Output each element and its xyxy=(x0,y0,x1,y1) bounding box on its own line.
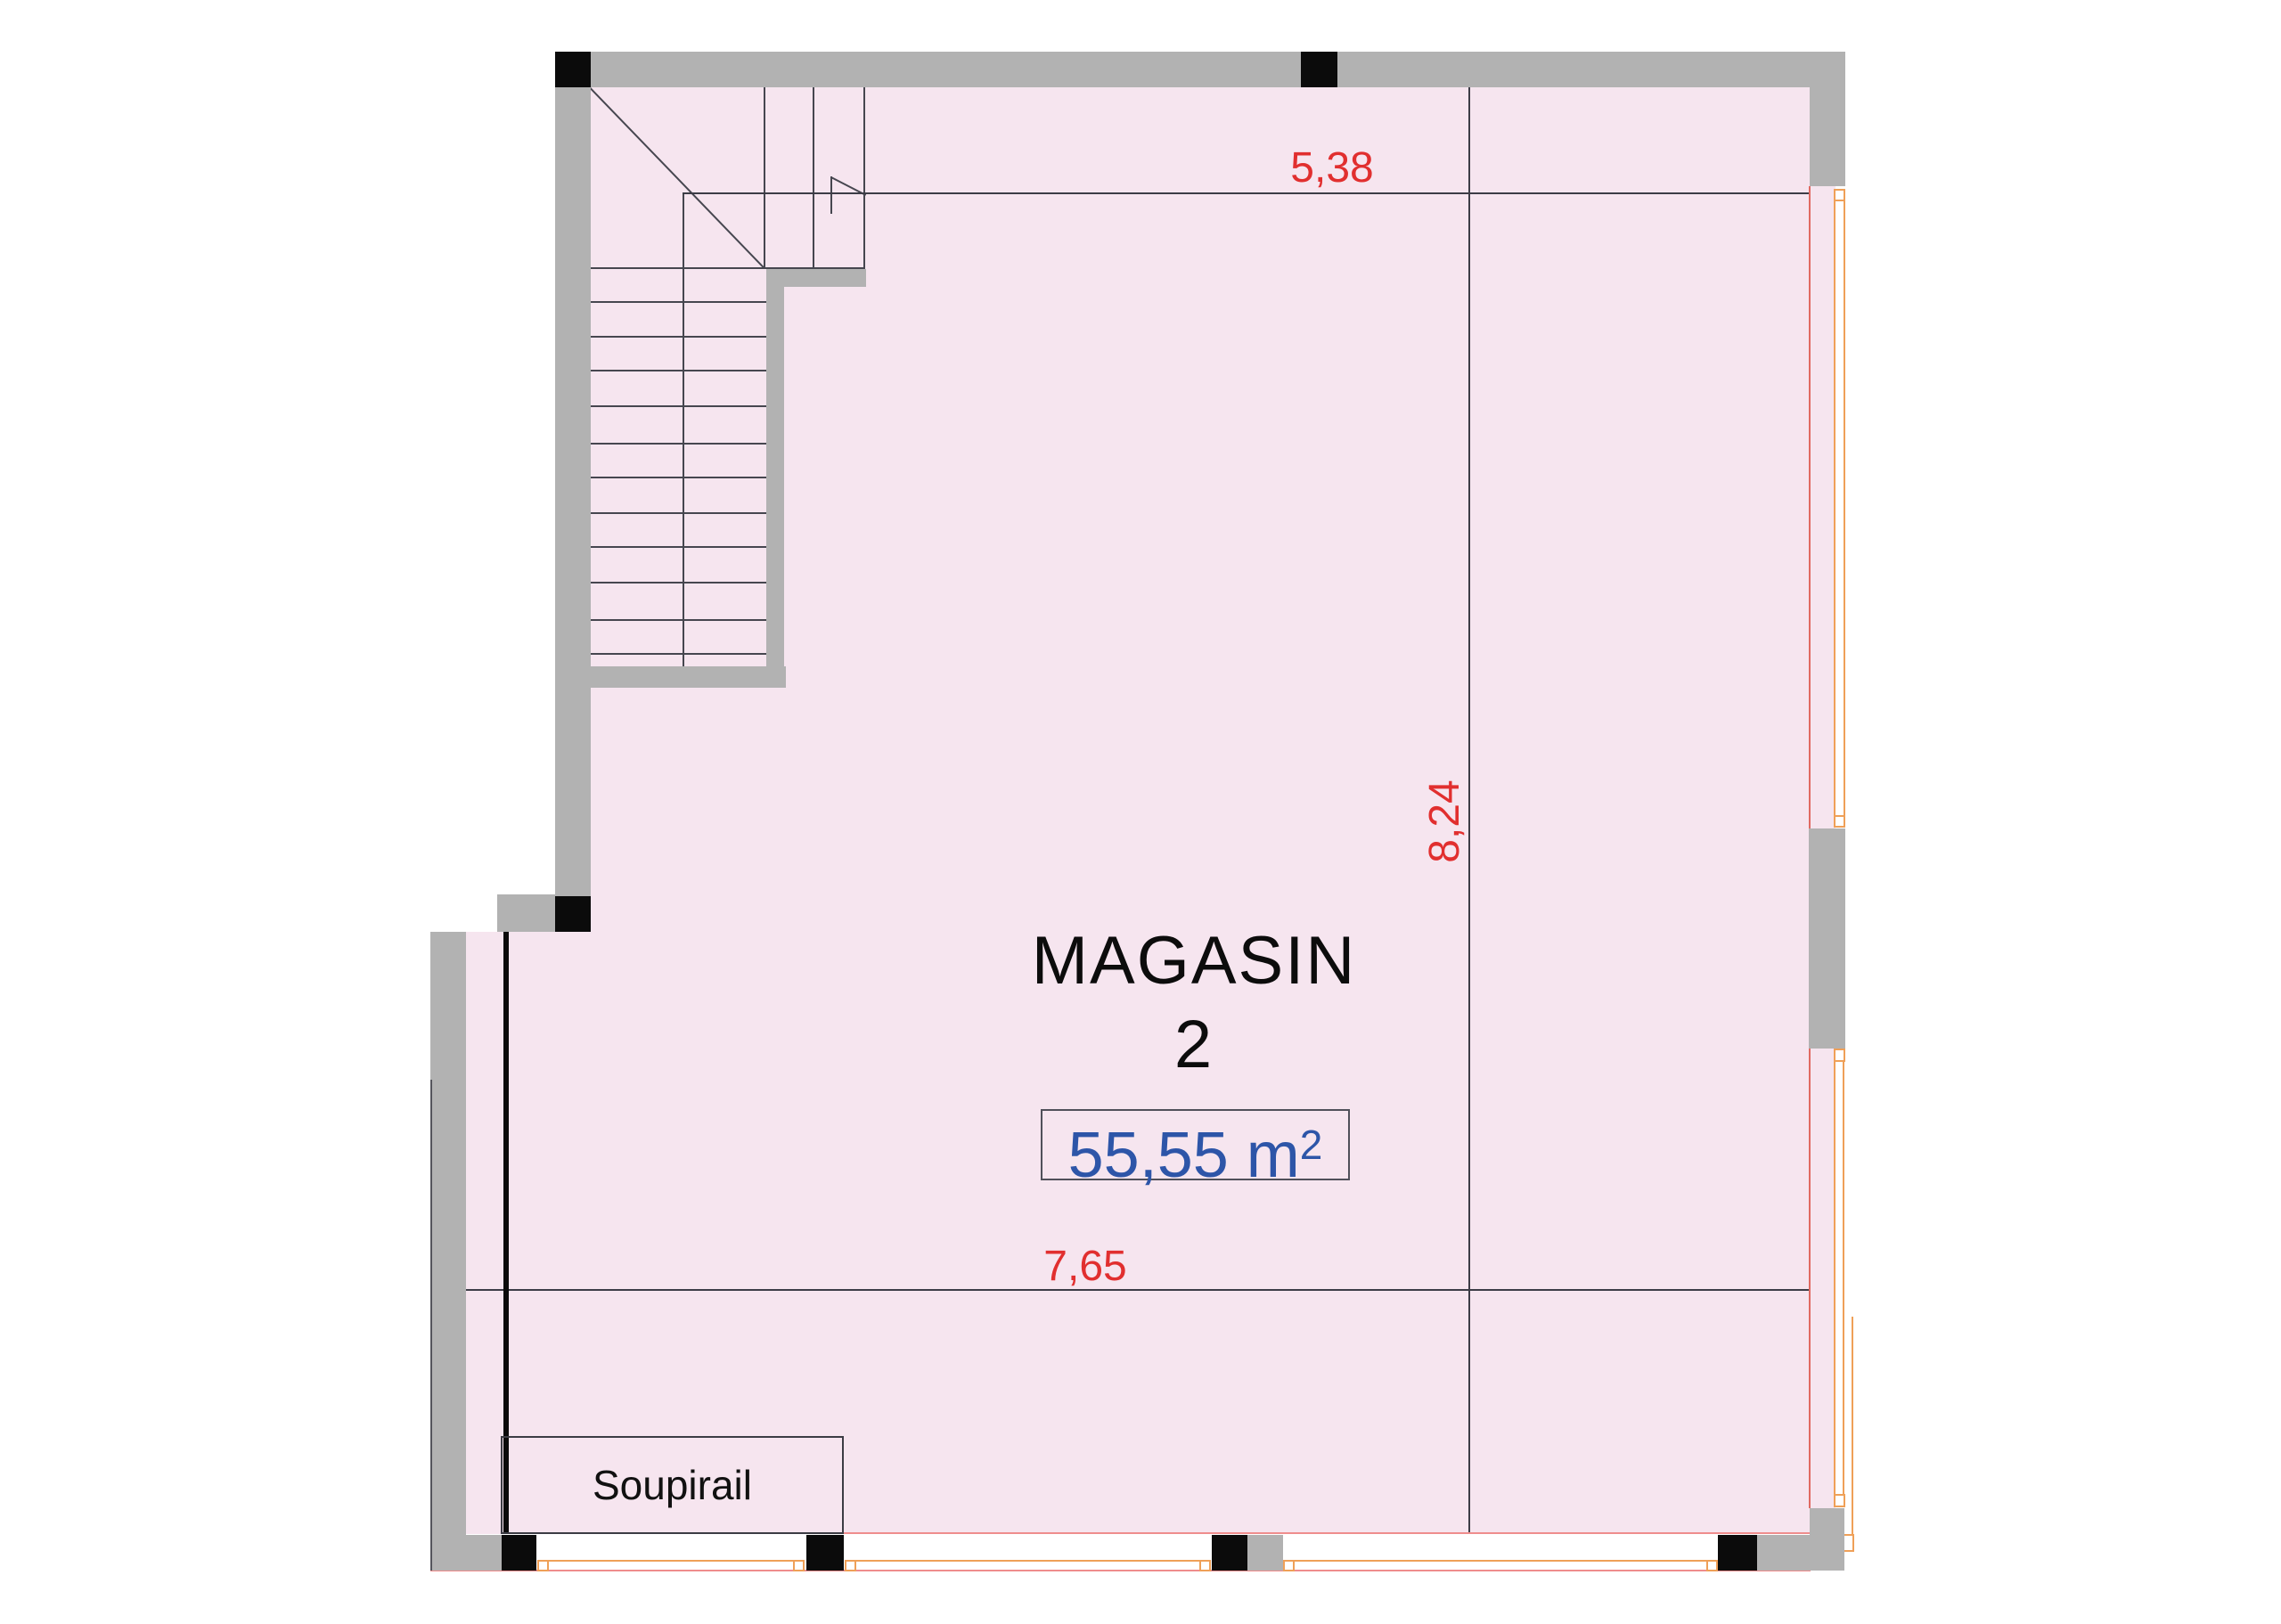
stair-tread xyxy=(591,336,766,338)
stair-tread xyxy=(591,477,766,478)
right-window-inner-line xyxy=(1809,186,1811,828)
window-glazing-line xyxy=(856,1560,1199,1562)
window-glazing-line xyxy=(1834,201,1835,815)
bottom-window-outer-line xyxy=(430,1570,1811,1571)
dimension-line-top-width xyxy=(683,192,1811,194)
stair-tread xyxy=(591,512,766,514)
wall-edge-line-lower-left xyxy=(430,1080,432,1571)
right-window-inner-line xyxy=(1809,1049,1811,1508)
stair-direction-arrow xyxy=(830,176,832,214)
wall-right-pier xyxy=(1809,828,1845,1049)
stair-wall-top-stub xyxy=(766,269,866,287)
dimension-top-width: 5,38 xyxy=(1290,145,1373,192)
dimension-line-bottom-width xyxy=(458,1289,1811,1291)
room-area-box: 55,55 m2 xyxy=(1041,1109,1350,1180)
window-frame-cap xyxy=(537,1560,549,1571)
window-glazing-line xyxy=(1843,1062,1844,1494)
column-bottom-4 xyxy=(1718,1535,1757,1571)
stair-tread-vertical xyxy=(764,87,765,269)
wall-bottom-right-corner-horizontal xyxy=(1757,1535,1844,1571)
dimension-line-height xyxy=(1468,87,1470,1534)
window-frame-cap xyxy=(1834,189,1845,201)
room-name-line2: 2 xyxy=(882,1003,1506,1087)
window-frame-cap xyxy=(845,1560,856,1571)
wall-right-top-corner xyxy=(1810,87,1845,186)
stair-tread xyxy=(591,582,766,583)
wall-bottom-middle-segment xyxy=(1247,1535,1283,1571)
stair-wall-right xyxy=(766,287,784,688)
window-frame-cap xyxy=(793,1560,805,1571)
window-glazing-line xyxy=(1295,1560,1706,1562)
stair-tread-vertical xyxy=(863,87,865,269)
stair-tread xyxy=(591,619,766,621)
wall-left-upper xyxy=(555,87,591,896)
right-window-reveal-top xyxy=(1811,186,1835,828)
stair-wall-bottom-stub xyxy=(590,666,786,688)
dimension-bottom-width: 7,65 xyxy=(1043,1244,1126,1290)
dimension-height: 8,24 xyxy=(1422,779,1468,862)
window-glazing-line xyxy=(1844,201,1845,815)
stair-tread-vertical xyxy=(813,87,814,269)
column-top-left xyxy=(555,52,591,87)
window-frame-cap xyxy=(1199,1560,1211,1571)
column-bottom-2 xyxy=(806,1535,844,1571)
stair-tread xyxy=(591,370,766,371)
basement-window-box: Soupirail xyxy=(501,1436,844,1534)
column-top-middle xyxy=(1301,52,1337,87)
column-left-jog xyxy=(555,896,591,932)
wall-bottom-left-segment xyxy=(430,1535,502,1571)
stair-tread xyxy=(591,546,766,548)
stair-tread xyxy=(591,653,766,655)
stair-tread xyxy=(591,443,766,445)
window-frame-cap xyxy=(1283,1560,1295,1571)
window-frame-cap xyxy=(1706,1560,1718,1571)
window-glazing-line xyxy=(548,1560,794,1562)
wall-top xyxy=(555,52,1845,87)
basement-window-label: Soupirail xyxy=(593,1461,752,1509)
room-area-exponent: 2 xyxy=(1300,1122,1323,1168)
window-frame-cap xyxy=(1834,1049,1845,1062)
room-name: MAGASIN 2 xyxy=(882,919,1506,1087)
column-bottom-3 xyxy=(1212,1535,1247,1571)
stair-tread xyxy=(591,405,766,407)
floor-plan-canvas: 5,38 7,65 8,24 Soupirail xyxy=(0,0,2281,1624)
wall-left-lower xyxy=(430,932,466,1571)
room-name-line1: MAGASIN xyxy=(882,919,1506,1003)
window-glazing-line xyxy=(1834,1062,1835,1494)
window-glazing-line xyxy=(1852,1317,1853,1535)
right-window-reveal-bottom xyxy=(1811,1049,1835,1508)
stair-tread xyxy=(591,301,766,303)
room-area-value: 55,55 m xyxy=(1068,1120,1300,1191)
stair-center-line xyxy=(683,194,684,666)
window-frame-cap xyxy=(1834,815,1845,828)
wall-left-jog-stub xyxy=(497,894,555,932)
window-frame-cap xyxy=(1834,1494,1845,1507)
column-bottom-1 xyxy=(502,1535,536,1571)
